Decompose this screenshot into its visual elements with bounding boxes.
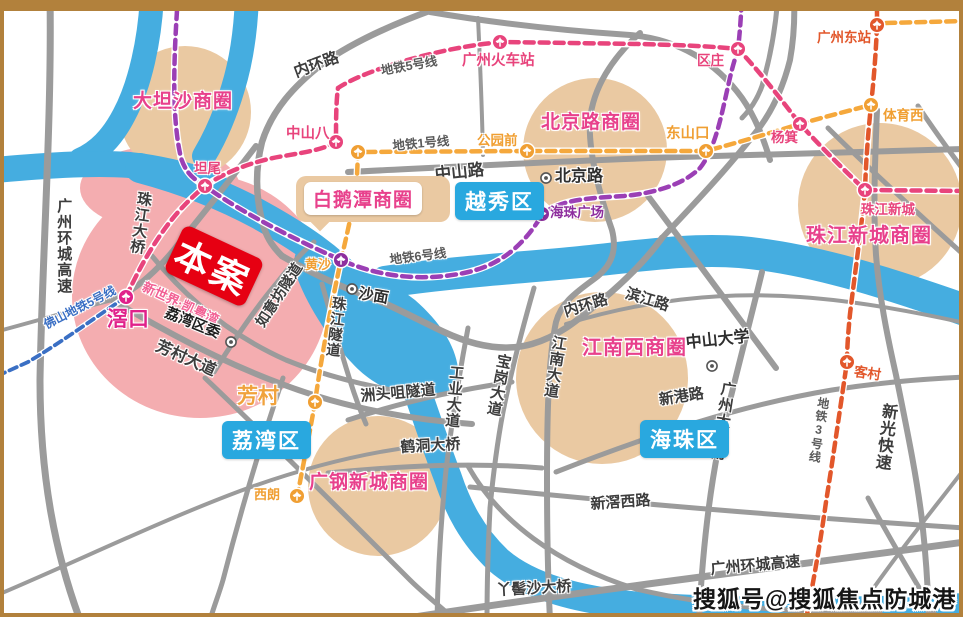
business-circle-guanggang: 广钢新城商圈	[309, 473, 429, 494]
station-icon-xilang	[289, 488, 304, 503]
station-label-tiyuxi: 体育西	[883, 109, 924, 124]
business-circle-zhujiangxincheng: 珠江新城商圈	[806, 226, 932, 248]
station-icon-zhongshanba	[328, 134, 343, 149]
business-circle-datansha: 大坦沙商圈	[133, 92, 233, 113]
station-label-gongyuanqian: 公园前	[477, 134, 518, 149]
station-label-zhujiangxincheng: 珠江新城	[861, 203, 915, 218]
station-icon-tiyuxi	[863, 97, 878, 112]
landmark-label-beijinglu: 北京路	[555, 168, 603, 185]
station-icon-kecun	[839, 354, 854, 369]
business-circle-jiangnanxi: 江南西商圈	[582, 338, 687, 360]
district-yuexiu: 越秀区	[455, 182, 544, 220]
station-icon-dongshankou	[698, 143, 713, 158]
business-circle-beijinglu: 北京路商圈	[541, 113, 641, 134]
area-jiaokou: 滘口	[107, 309, 149, 332]
station-icon-tanwei	[197, 178, 212, 193]
station-icon-line1-turn	[350, 144, 365, 159]
station-label-tanwei: 坦尾	[194, 162, 221, 177]
station-icon-jiaokou	[118, 289, 133, 304]
station-label-zhongshanba: 中山八	[286, 127, 330, 143]
station-icon-zhujiangxincheng	[857, 182, 872, 197]
district-liwan: 荔湾区	[222, 421, 311, 459]
landmark-icon-zhongshan-university	[707, 361, 717, 371]
real-estate-location-map: 白鹅潭商圈 大坦沙商圈 北京路商圈 珠江新城商圈 江南西商圈 广钢新城商圈 越秀…	[0, 0, 963, 617]
station-icon-guangzhou-railway	[492, 34, 507, 49]
business-circle-baietan: 白鹅潭商圈	[304, 182, 422, 215]
station-label-huangsha: 黄沙	[305, 258, 331, 272]
station-label-yangji: 杨箕	[771, 131, 798, 146]
station-icon-guangzhou-east	[869, 17, 884, 32]
station-label-dongshankou: 东山口	[666, 127, 710, 143]
metro-line-3	[806, 0, 877, 617]
road-xinjiaoxi	[470, 487, 963, 528]
landmark-icon-beijinglu	[541, 173, 551, 183]
station-label-guangzhou-east: 广州东站	[817, 31, 871, 46]
landmark-icon-shamian	[347, 284, 357, 294]
station-label-haizhu-square: 海珠广场	[550, 206, 604, 221]
station-icon-fangcun	[307, 394, 322, 409]
district-haizhu: 海珠区	[640, 420, 729, 458]
station-icon-quzhuang	[730, 41, 745, 56]
landmark-icon-liwan-committee	[226, 337, 236, 347]
station-label-xilang: 西朗	[254, 488, 280, 502]
station-icon-gongyuanqian	[519, 143, 534, 158]
road-label-hedong-bridge: 鹤洞大桥	[400, 437, 461, 456]
road-label-huancheng-west: 广州环城高速	[55, 198, 71, 294]
area-fangcun: 芳村	[237, 386, 279, 409]
station-label-guangzhou-railway: 广州火车站	[462, 54, 535, 70]
watermark-sohu: 搜狐号@搜狐焦点防城港站	[693, 580, 963, 617]
station-label-quzhuang: 区庄	[697, 54, 724, 69]
station-icon-huangsha	[333, 252, 348, 267]
